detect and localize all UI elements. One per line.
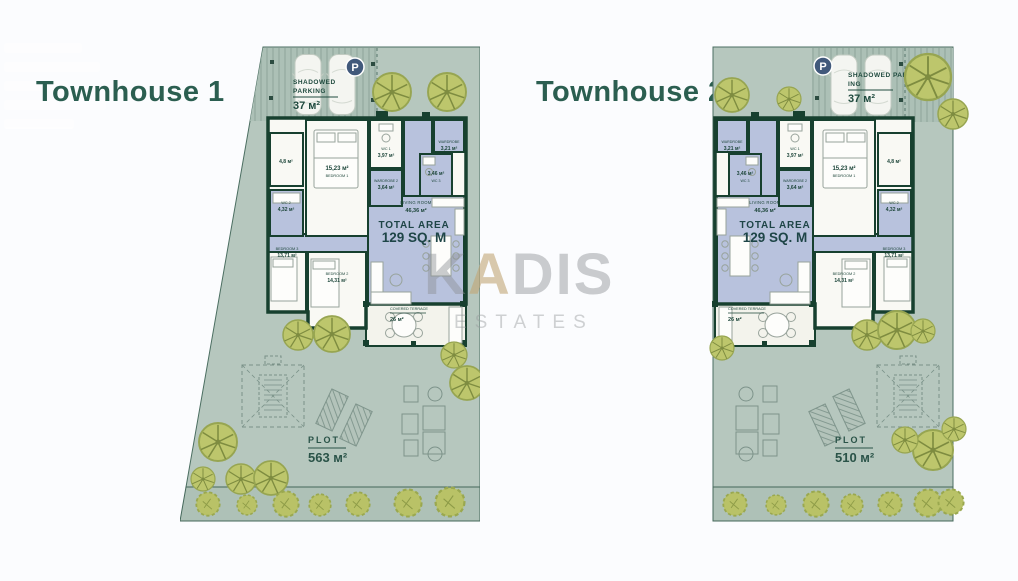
tree-icon — [254, 461, 288, 495]
tree-icon — [710, 336, 734, 360]
car-icon — [863, 55, 894, 115]
bedroom2-name-label: BEDROOM 2 — [326, 272, 349, 276]
wc3-area-label: 3,46 м² — [428, 171, 445, 177]
tree-icon — [199, 423, 237, 461]
wardrobe-name-label: WARDROBE — [438, 140, 460, 144]
parking-line2: ING — [848, 81, 861, 88]
bedroom3-area-label: 13,71 м² — [884, 253, 904, 259]
storage-area-label: 4,8 м² — [887, 159, 901, 165]
wc3-name-label: WC 3 — [432, 179, 441, 183]
terrace-area-label: 26 м² — [728, 316, 742, 323]
tree-icon — [441, 342, 467, 368]
living-name-label: LIVING ROOM — [749, 200, 780, 205]
parking-badge-letter: P — [351, 62, 358, 74]
bedroom1-area-label: 15,23 м² — [832, 165, 855, 172]
wardrobe-name-label: WARDROBE — [721, 140, 743, 144]
townhouse1-floorplan: P SHADOWED PARKING 37 м² — [180, 38, 480, 528]
bush-icon — [766, 495, 786, 515]
bush-icon — [309, 494, 331, 516]
bush-icon — [915, 490, 942, 517]
bush-icon — [395, 490, 422, 517]
bush-icon — [841, 494, 863, 516]
parking-badge-icon: P — [346, 58, 364, 76]
parking-line1: SHADOWED — [293, 79, 336, 86]
bush-icon — [436, 488, 465, 517]
tree-icon — [938, 99, 968, 129]
bedroom2-area-label: 14,31 м² — [834, 278, 854, 284]
bedroom1-name-label: BEDROOM 1 — [833, 174, 856, 178]
tree-icon — [852, 320, 882, 350]
bedroom3-name-label: BEDROOM 3 — [276, 247, 299, 251]
plot-area-value: 563 м² — [308, 450, 348, 465]
wc3-area-label: 3,46 м² — [737, 171, 754, 177]
tree-icon — [892, 427, 918, 453]
floorplan-canvas: Townhouse 1 Townhouse 2 — [0, 0, 1018, 581]
bush-icon — [237, 495, 257, 515]
plot-area-value: 510 м² — [835, 450, 875, 465]
tree-icon — [191, 467, 215, 491]
tree-icon — [715, 78, 749, 112]
wc2-area-label: 4,32 м² — [278, 207, 295, 213]
plot-word: PLOT — [308, 435, 340, 445]
parking-badge-icon: P — [814, 57, 832, 75]
bush-icon — [878, 492, 901, 515]
parking-badge-letter: P — [819, 61, 826, 73]
living-name-label: LIVING ROOM — [400, 200, 431, 205]
wc2-area-label: 4,32 м² — [886, 207, 903, 213]
storage-area-label: 4,8 м² — [279, 159, 293, 165]
tree-icon — [373, 73, 411, 111]
bush-icon — [938, 489, 963, 514]
bush-icon — [803, 491, 828, 516]
bedroom3-name-label: BEDROOM 3 — [883, 247, 906, 251]
tree-icon — [428, 73, 466, 111]
tree-icon — [911, 319, 935, 343]
wardrobe2-name-label: WARDROBE 2 — [374, 179, 398, 183]
bush-icon — [346, 492, 369, 515]
living-area-label: 46,36 м² — [754, 207, 775, 214]
bush-icon — [723, 492, 746, 515]
tree-icon — [226, 464, 256, 494]
bush-icon — [273, 491, 298, 516]
terrace-name-label: COVERED TERRACE — [728, 307, 766, 311]
wardrobe2-area-label: 3,64 м² — [378, 185, 395, 191]
tree-icon — [283, 320, 313, 350]
bedroom3-area-label: 13,71 м² — [277, 253, 297, 259]
parking-area-value: 37 м² — [293, 100, 320, 112]
corner-watermark-logo — [4, 34, 124, 194]
wc1-area-label: 3,97 м² — [787, 153, 804, 159]
wardrobe-area-label: 3,21 м² — [441, 146, 458, 152]
parking-area: P SHADOWED PARKING 37 м² — [250, 48, 377, 121]
wc3-name-label: WC 3 — [741, 179, 750, 183]
plot-word: PLOT — [835, 435, 867, 445]
tree-icon — [942, 417, 966, 441]
bedroom1-area-label: 15,23 м² — [325, 165, 348, 172]
bedroom2-area-label: 14,31 м² — [327, 278, 347, 284]
total-area-line2: 129 SQ. M — [382, 230, 447, 245]
bedroom1-name-label: BEDROOM 1 — [326, 174, 349, 178]
bedroom2-name-label: BEDROOM 2 — [833, 272, 856, 276]
wc2-name-label: WC 2 — [281, 201, 291, 205]
terrace-area-label: 26 м² — [390, 316, 404, 323]
tree-icon — [905, 54, 951, 100]
bush-icon — [196, 492, 219, 515]
parking-line2: PARKING — [293, 88, 326, 95]
wc1-name-label: WC 1 — [381, 147, 391, 151]
wc1-name-label: WC 1 — [790, 147, 800, 151]
brand-dis: DIS — [512, 242, 615, 307]
tree-icon — [777, 87, 801, 111]
wardrobe2-name-label: WARDROBE 2 — [783, 179, 807, 183]
tree-icon — [450, 366, 480, 400]
tree-icon — [878, 311, 916, 349]
wc1-area-label: 3,97 м² — [378, 153, 395, 159]
terrace-name-label: COVERED TERRACE — [390, 307, 428, 311]
parking-area-value: 37 м² — [848, 93, 875, 105]
living-area-label: 46,36 м² — [405, 207, 426, 214]
wardrobe-area-label: 3,21 м² — [724, 146, 741, 152]
townhouse2-floorplan: P SHADOWED PARK- ING 37 м² — [690, 38, 990, 528]
tree-icon — [314, 316, 350, 352]
wardrobe2-area-label: 3,64 м² — [787, 185, 804, 191]
total-area-line2: 129 SQ. M — [743, 230, 808, 245]
wc2-name-label: WC 2 — [889, 201, 899, 205]
